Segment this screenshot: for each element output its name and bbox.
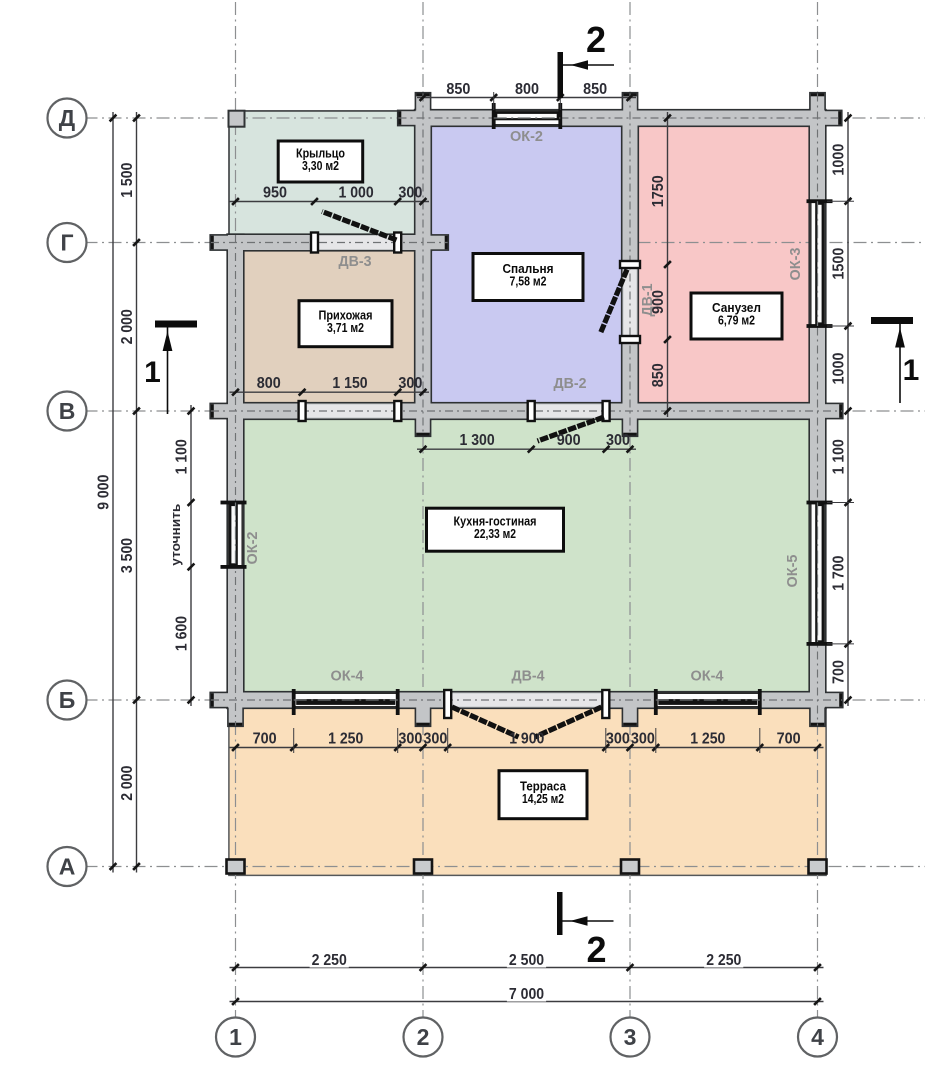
svg-text:9 000: 9 000	[96, 475, 113, 510]
svg-text:Г: Г	[60, 230, 73, 256]
svg-text:2: 2	[586, 19, 606, 60]
svg-text:ОК-3: ОК-3	[788, 248, 804, 281]
svg-text:1 150: 1 150	[332, 375, 367, 392]
svg-text:1 600: 1 600	[174, 616, 191, 651]
svg-text:22,33 м2: 22,33 м2	[474, 527, 516, 541]
svg-text:2 500: 2 500	[509, 952, 544, 969]
svg-text:800: 800	[257, 375, 281, 392]
svg-text:1 250: 1 250	[328, 731, 363, 748]
svg-text:700: 700	[777, 731, 801, 748]
svg-text:3,71 м2: 3,71 м2	[327, 321, 364, 335]
svg-text:6,79 м2: 6,79 м2	[718, 313, 755, 327]
svg-text:1: 1	[229, 1024, 242, 1050]
svg-text:14,25 м2: 14,25 м2	[522, 792, 564, 806]
svg-text:1 000: 1 000	[339, 185, 374, 202]
svg-text:850: 850	[583, 81, 607, 98]
svg-text:В: В	[59, 398, 76, 424]
svg-text:300: 300	[606, 432, 630, 449]
svg-text:2: 2	[586, 929, 606, 970]
svg-text:1 900: 1 900	[509, 731, 544, 748]
svg-text:7 000: 7 000	[509, 986, 544, 1003]
svg-text:ДВ-2: ДВ-2	[554, 376, 587, 392]
svg-text:3: 3	[624, 1024, 637, 1050]
svg-text:Д: Д	[59, 105, 75, 131]
svg-text:1500: 1500	[831, 248, 848, 280]
svg-text:7,58 м2: 7,58 м2	[510, 274, 547, 288]
svg-text:1 300: 1 300	[460, 432, 495, 449]
svg-text:850: 850	[650, 363, 667, 387]
svg-text:1000: 1000	[831, 144, 848, 176]
svg-text:1 700: 1 700	[831, 556, 848, 591]
svg-text:300: 300	[398, 185, 422, 202]
svg-text:300: 300	[398, 375, 422, 392]
svg-text:700: 700	[831, 660, 848, 684]
svg-text:1750: 1750	[650, 175, 667, 207]
svg-text:ОК-4: ОК-4	[331, 669, 364, 685]
svg-text:2 250: 2 250	[312, 952, 347, 969]
svg-text:850: 850	[446, 81, 470, 98]
svg-text:2 250: 2 250	[706, 952, 741, 969]
svg-text:2 000: 2 000	[119, 766, 136, 801]
svg-text:300: 300	[606, 731, 630, 748]
svg-text:900: 900	[650, 290, 667, 314]
svg-text:4: 4	[811, 1024, 824, 1050]
svg-text:3 500: 3 500	[119, 538, 136, 573]
svg-text:1: 1	[903, 354, 920, 387]
svg-text:ОК-2: ОК-2	[510, 129, 543, 145]
svg-text:Б: Б	[59, 687, 76, 713]
svg-text:ОК-5: ОК-5	[785, 555, 801, 588]
svg-text:300: 300	[631, 731, 655, 748]
svg-text:ДВ-4: ДВ-4	[512, 669, 545, 685]
svg-text:900: 900	[557, 432, 581, 449]
svg-text:1 100: 1 100	[831, 439, 848, 474]
svg-text:2: 2	[417, 1024, 430, 1050]
svg-text:3,30 м2: 3,30 м2	[302, 159, 339, 173]
svg-text:800: 800	[515, 81, 539, 98]
svg-text:уточнить: уточнить	[168, 504, 183, 566]
svg-text:700: 700	[253, 731, 277, 748]
svg-text:А: А	[59, 854, 76, 880]
svg-text:1: 1	[144, 356, 161, 389]
svg-text:1 250: 1 250	[690, 731, 725, 748]
svg-text:950: 950	[263, 185, 287, 202]
svg-text:2 000: 2 000	[119, 309, 136, 344]
svg-text:300: 300	[423, 731, 447, 748]
svg-text:ОК-2: ОК-2	[245, 532, 261, 565]
svg-text:ДВ-3: ДВ-3	[339, 254, 372, 270]
svg-text:1 500: 1 500	[119, 163, 136, 198]
svg-text:ОК-4: ОК-4	[691, 669, 724, 685]
svg-text:300: 300	[398, 731, 422, 748]
svg-text:1000: 1000	[831, 352, 848, 384]
svg-text:1 100: 1 100	[174, 439, 191, 474]
